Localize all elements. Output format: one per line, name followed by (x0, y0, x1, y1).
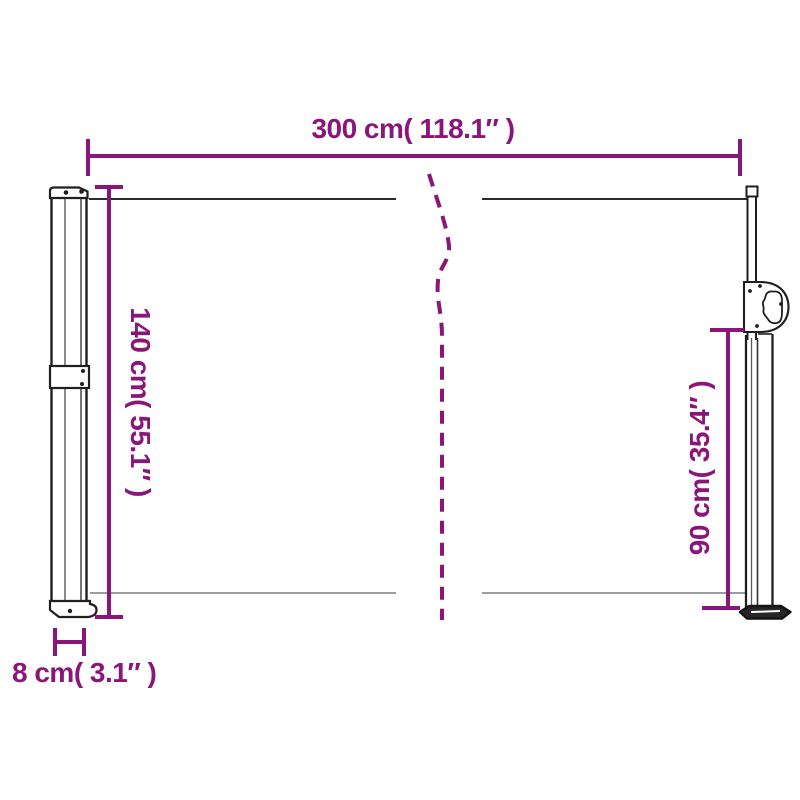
screw-dot (779, 302, 783, 306)
screw-dot (68, 609, 72, 613)
width-dimension-label: 300 cm( 118.1″ ) (311, 113, 514, 144)
post-base-foot (50, 601, 97, 617)
right-support-post (740, 187, 791, 619)
depth-dimension (55, 628, 84, 656)
screw-dot (758, 284, 762, 288)
height-left-dimension (95, 187, 123, 617)
screw-dot (81, 369, 85, 373)
diagram-canvas: 300 cm( 118.1″ ) 140 cm( 55.1″ ) 90 cm( … (0, 0, 800, 800)
left-cassette-post (50, 188, 97, 618)
fabric-break-line (429, 174, 449, 620)
width-dimension (88, 139, 740, 176)
pole-base-plate-highlight (751, 611, 780, 612)
screw-dot (64, 190, 69, 195)
height-right-dimension-label: 90 cm( 35.4″ ) (684, 381, 715, 556)
dimension-diagram: 300 cm( 118.1″ ) 140 cm( 55.1″ ) 90 cm( … (0, 0, 800, 800)
screw-dot (748, 289, 752, 293)
pole-top-cap (747, 187, 758, 197)
screw-dot (755, 324, 759, 328)
awning-panel-edges (89, 199, 747, 593)
screw-dot (79, 189, 84, 194)
height-left-dimension-label: 140 cm( 55.1″ ) (125, 307, 156, 497)
depth-dimension-label: 8 cm( 3.1″ ) (12, 657, 156, 688)
screw-dot (80, 382, 84, 386)
